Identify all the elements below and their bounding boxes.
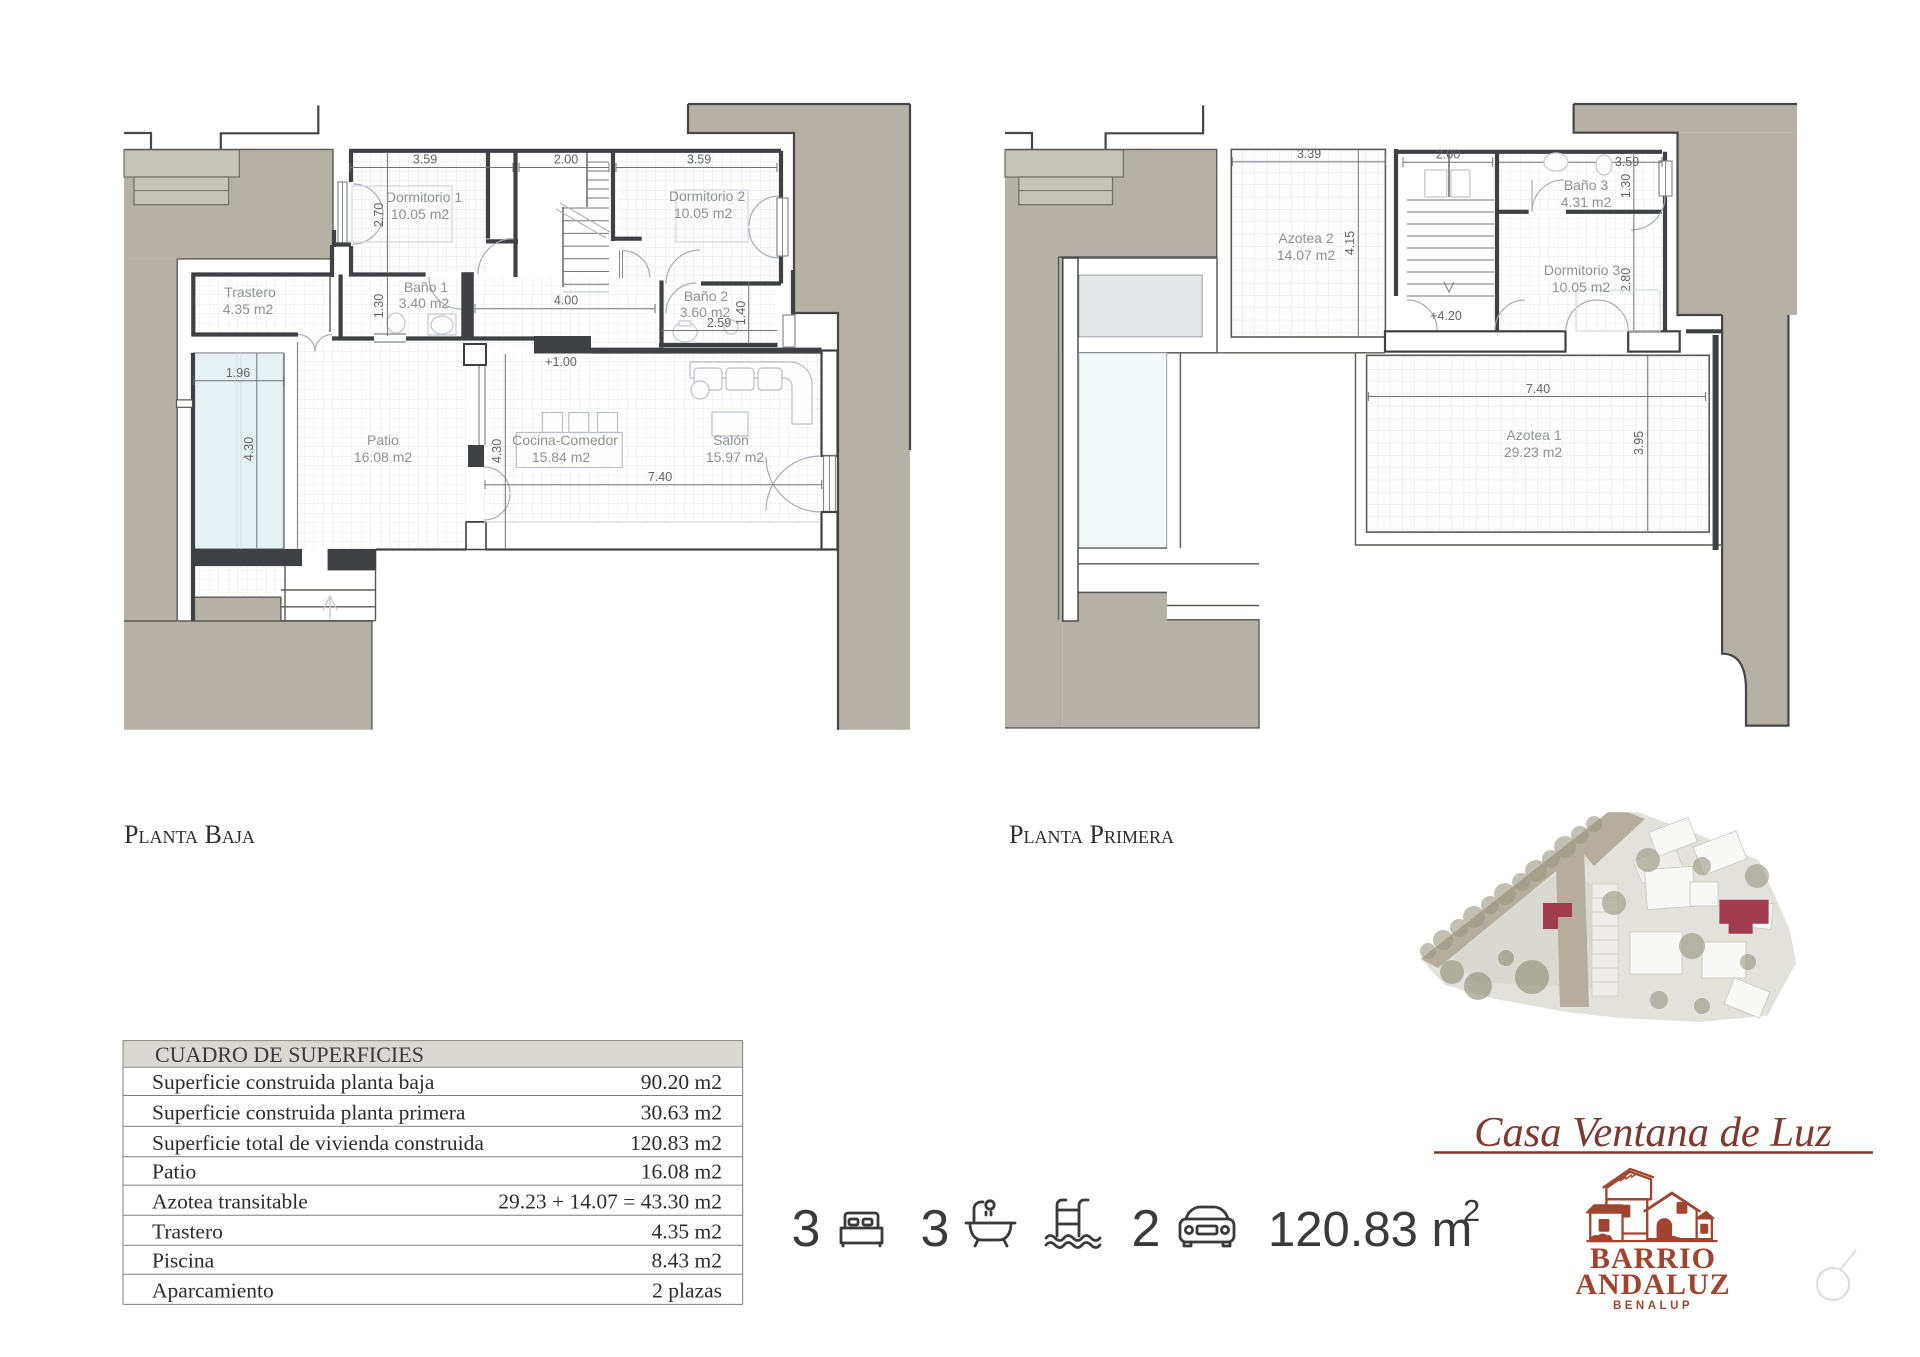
svg-text:14.07 m2: 14.07 m2 bbox=[1277, 247, 1336, 263]
svg-text:3.39: 3.39 bbox=[1297, 147, 1321, 161]
svg-text:1.96: 1.96 bbox=[226, 366, 250, 380]
svg-text:30.63 m2: 30.63 m2 bbox=[641, 1101, 722, 1125]
svg-text:15.84 m2: 15.84 m2 bbox=[532, 449, 591, 465]
svg-text:Dormitorio 1: Dormitorio 1 bbox=[386, 189, 462, 205]
svg-text:Planta Baja: Planta Baja bbox=[124, 820, 255, 849]
svg-text:Cocina-Comedor: Cocina-Comedor bbox=[512, 432, 618, 448]
svg-text:Azotea 2: Azotea 2 bbox=[1278, 230, 1333, 246]
svg-text:CUADRO DE SUPERFICIES: CUADRO DE SUPERFICIES bbox=[155, 1042, 424, 1067]
svg-text:3: 3 bbox=[792, 1200, 821, 1258]
svg-text:Superficie construida planta b: Superficie construida planta baja bbox=[152, 1070, 435, 1094]
svg-text:Superficie total de vivienda c: Superficie total de vivienda construida bbox=[152, 1131, 484, 1155]
svg-text:Patio: Patio bbox=[367, 432, 399, 448]
svg-text:10.05 m2: 10.05 m2 bbox=[1552, 279, 1611, 295]
svg-text:29.23 + 14.07 = 43.30 m2: 29.23 + 14.07 = 43.30 m2 bbox=[498, 1190, 722, 1214]
svg-text:Salón: Salón bbox=[713, 432, 749, 448]
svg-text:+1.00: +1.00 bbox=[545, 355, 577, 369]
svg-text:4.35 m2: 4.35 m2 bbox=[223, 301, 274, 317]
svg-text:4.30: 4.30 bbox=[242, 437, 256, 461]
svg-text:16.08 m2: 16.08 m2 bbox=[354, 449, 413, 465]
svg-text:+4.20: +4.20 bbox=[1430, 309, 1462, 323]
svg-text:Planta Primera: Planta Primera bbox=[1009, 820, 1174, 849]
svg-text:Baño 2: Baño 2 bbox=[684, 288, 729, 304]
svg-text:Casa Ventana de Luz: Casa Ventana de Luz bbox=[1474, 1109, 1832, 1156]
svg-text:3.40 m2: 3.40 m2 bbox=[399, 295, 450, 311]
svg-text:Azotea 1: Azotea 1 bbox=[1506, 427, 1561, 443]
svg-text:90.20 m2: 90.20 m2 bbox=[641, 1070, 722, 1094]
svg-text:120.83 m2: 120.83 m2 bbox=[630, 1131, 722, 1155]
svg-text:Azotea transitable: Azotea transitable bbox=[152, 1190, 308, 1214]
svg-text:Dormitorio 2: Dormitorio 2 bbox=[669, 188, 745, 204]
svg-text:8.43 m2: 8.43 m2 bbox=[652, 1249, 722, 1273]
svg-text:1.30: 1.30 bbox=[372, 294, 386, 318]
svg-text:10.05 m2: 10.05 m2 bbox=[674, 205, 733, 221]
svg-text:1.40: 1.40 bbox=[734, 301, 748, 325]
svg-text:3: 3 bbox=[921, 1200, 950, 1258]
svg-text:2: 2 bbox=[1132, 1200, 1161, 1258]
svg-text:29.23 m2: 29.23 m2 bbox=[1504, 444, 1563, 460]
svg-text:Baño 1: Baño 1 bbox=[404, 279, 449, 295]
svg-text:Trastero: Trastero bbox=[152, 1220, 223, 1244]
svg-text:Trastero: Trastero bbox=[224, 284, 276, 300]
svg-text:2 plazas: 2 plazas bbox=[652, 1279, 722, 1303]
svg-text:3.59: 3.59 bbox=[687, 153, 711, 167]
svg-text:3.60 m2: 3.60 m2 bbox=[680, 304, 731, 320]
svg-text:120.83 m: 120.83 m bbox=[1268, 1203, 1472, 1257]
svg-text:Dormitorio 3: Dormitorio 3 bbox=[1544, 262, 1620, 278]
svg-text:4.31 m2: 4.31 m2 bbox=[1561, 194, 1612, 210]
svg-text:2: 2 bbox=[1463, 1193, 1480, 1228]
svg-text:BENALUP: BENALUP bbox=[1613, 1300, 1693, 1312]
svg-text:2.80: 2.80 bbox=[1619, 268, 1633, 292]
svg-text:Piscina: Piscina bbox=[152, 1249, 215, 1273]
svg-text:Superficie construida planta p: Superficie construida planta primera bbox=[152, 1101, 466, 1125]
svg-text:3.59: 3.59 bbox=[413, 153, 437, 167]
svg-text:7.40: 7.40 bbox=[1526, 382, 1550, 396]
svg-text:Patio: Patio bbox=[152, 1160, 196, 1184]
svg-text:2.70: 2.70 bbox=[372, 203, 386, 227]
svg-text:2.00: 2.00 bbox=[554, 153, 578, 167]
svg-text:3.95: 3.95 bbox=[1632, 431, 1646, 455]
svg-text:7.40: 7.40 bbox=[648, 470, 672, 484]
svg-text:4.30: 4.30 bbox=[490, 439, 504, 463]
svg-text:10.05 m2: 10.05 m2 bbox=[391, 206, 450, 222]
svg-text:1.30: 1.30 bbox=[1619, 174, 1633, 198]
svg-text:3.59: 3.59 bbox=[1615, 155, 1639, 169]
svg-text:Aparcamiento: Aparcamiento bbox=[152, 1279, 274, 1303]
svg-text:16.08 m2: 16.08 m2 bbox=[641, 1160, 722, 1184]
svg-text:15.97 m2: 15.97 m2 bbox=[706, 449, 765, 465]
svg-text:4.35 m2: 4.35 m2 bbox=[652, 1220, 722, 1244]
svg-text:4.15: 4.15 bbox=[1343, 231, 1357, 255]
svg-text:ANDALUZ: ANDALUZ bbox=[1575, 1268, 1730, 1301]
svg-text:2.00: 2.00 bbox=[1436, 148, 1460, 162]
svg-text:Baño 3: Baño 3 bbox=[1564, 177, 1609, 193]
svg-text:4.00: 4.00 bbox=[554, 294, 578, 308]
